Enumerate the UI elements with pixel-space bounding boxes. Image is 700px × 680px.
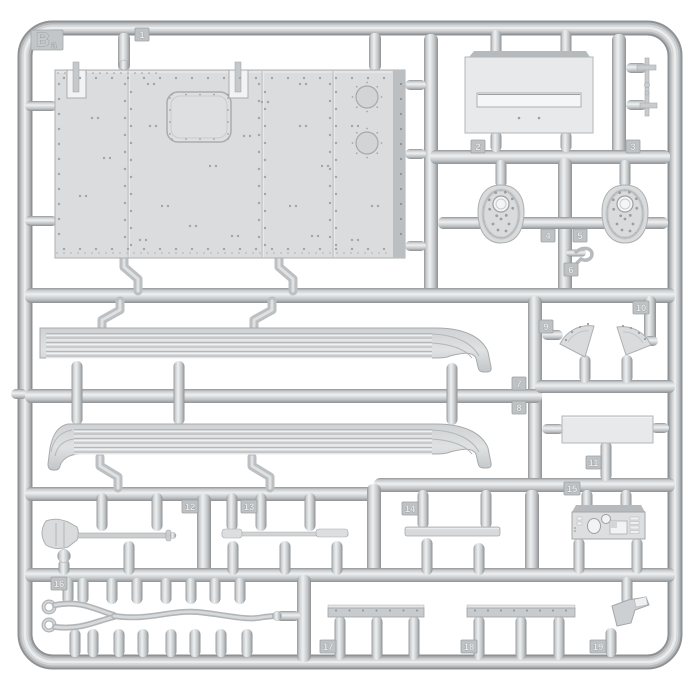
rivet-dot [287,77,289,79]
rivet-dot [366,128,368,130]
gate-pill [72,361,83,425]
rivet-dot [383,77,385,79]
rivet-dot [356,86,358,88]
rivet-dot [319,77,321,79]
rivet-dot [329,168,331,170]
rivet-dot [264,125,266,127]
rivet-dot [207,77,209,79]
rivet-dot [261,101,263,103]
hatch-outline [167,92,231,142]
gate-pill [25,101,57,111]
rivet-dot [416,610,418,612]
rivet-dot [335,142,337,144]
part-number-tab-19: 19 [590,640,606,653]
rivet-dot [356,106,358,108]
gate-pill [622,355,633,383]
rivet-dot [303,248,305,250]
rivet-dot [517,220,519,222]
part-5-perforated-cover [602,185,648,243]
rivet-dot [271,77,273,79]
gate-pill [409,616,420,660]
gate-pill [418,490,429,529]
rivet-dot [635,194,637,196]
rivet-dot [571,331,573,333]
rivet-dot [381,96,383,98]
rivet-dot [124,202,126,204]
rivet-dot [227,109,229,111]
part-number-tab-17: 17 [320,640,336,653]
rivet-dot [159,248,161,250]
gate-pill [561,131,572,152]
part-number-tab-18: 18 [461,640,477,653]
rivet-dot [195,225,197,227]
rivet-dot [614,232,616,234]
rivet-dot [155,125,157,127]
rivet-dot [335,77,337,79]
rivet-dot [327,165,329,167]
part-18-riveted-rail [467,605,575,617]
rivet-dot [58,173,60,175]
rivet-dot [130,193,132,195]
rivet-dot [124,219,126,221]
part-8-fender [48,424,491,470]
part-3-control-lever [637,58,657,116]
gate-pill [124,541,135,575]
gate-pill [235,578,246,604]
rivet-dot [58,218,60,220]
rivet-dot [607,206,609,208]
rivet-dot [58,203,60,205]
rivet-dot [231,235,233,237]
round-port-cover [356,86,378,108]
gate-pill [542,424,564,434]
rivet-dot [130,244,132,246]
gate-pill [491,131,502,152]
rivet-dot [352,96,354,98]
rivet-dot [191,77,193,79]
rivet-dot [632,223,635,226]
rivet-dot [130,227,132,229]
rivet-dot [58,113,60,115]
rivet-dot [505,214,508,217]
rivet-dot [191,248,193,250]
svg-text:15: 15 [567,484,578,495]
gate-pill [516,616,527,660]
rivet-dot [264,176,266,178]
rivet-dot [264,227,266,229]
part-number-tab-10: 10 [633,301,649,314]
rivet-dot [356,132,358,134]
gate-pill [88,629,99,657]
rivet-dot [227,133,229,135]
rivet-dot [111,248,113,250]
svg-text:13: 13 [244,502,255,513]
gate-pill [70,629,81,657]
gate-pill [620,160,631,188]
gate-pill [216,629,227,657]
part-9-sector-plate [560,323,594,357]
gate-pill [138,629,149,657]
rivet-dot [630,327,632,329]
part-number-tab-9: 9 [539,320,553,333]
rivet-dot [295,205,297,207]
panel-slat [630,526,639,529]
gate-pill [186,578,197,604]
rivet-dot [629,214,632,217]
rivet-dot [109,157,111,159]
rivet-dot [227,121,229,123]
rivet-dot [400,203,402,205]
gate-pill [651,423,669,433]
svg-text:12: 12 [185,502,196,513]
rivet-dot [494,191,497,194]
rivet-dot [124,168,126,170]
rivet-dot [335,91,337,93]
rivet-dot [130,210,132,212]
rivet-dot [264,159,266,161]
rivet-dot [638,332,640,334]
rivet-dot [264,108,266,110]
rivet-dot [199,94,201,96]
svg-text:6: 6 [568,265,573,276]
part-11-flat-plate [562,416,653,443]
rivet-dot [130,108,132,110]
rivet-dot [618,191,621,194]
svg-text:14: 14 [405,504,416,515]
rivet-dot [111,77,113,79]
rivet-dot [383,248,385,250]
rivet-dot [311,235,313,237]
rivet-dot [635,207,638,210]
rivet-dot [587,323,589,325]
rivet-dot [255,248,257,250]
rivet-dot [58,143,60,145]
rivet-dot [335,244,337,246]
rivet-dot [400,173,402,175]
round-port-cover [356,132,378,154]
rivet-dot [366,82,368,84]
rivet-dot [264,91,266,93]
rivet-dot [58,128,60,130]
svg-text:18: 18 [464,642,475,653]
part-number-tab-13: 13 [241,500,257,513]
rivet-dot [376,152,378,154]
svg-text:19: 19 [593,642,604,653]
rivet-dot [149,125,151,127]
gate-pill [601,441,612,481]
rivet-dot [335,125,337,127]
rivet-dot [79,77,81,79]
rivet-dot [95,248,97,250]
rivet-dot [130,91,132,93]
rivet-dot [258,185,260,187]
rivet-dot [483,206,485,208]
rivet-dot [474,610,476,612]
rivet-dot [227,97,229,99]
rivet-dot [500,190,502,192]
rivet-dot [130,142,132,144]
gate-pill [405,80,426,90]
rivet-dot [335,227,337,229]
rivet-dot [357,125,359,127]
rivet-dot [264,244,266,246]
rivet-dot [258,202,260,204]
rivet-dot [127,77,129,79]
rivet-dot [161,205,163,207]
rivet-dot [124,185,126,187]
rivet-dot [95,77,97,79]
rivet-dot [329,185,331,187]
gate-pill [632,538,643,574]
rivet-dot [207,248,209,250]
rivet-dot [400,128,402,130]
rivet-dot [58,188,60,190]
rivet-dot [500,610,502,612]
gate-pill [161,578,172,604]
rivet-dot [400,233,402,235]
rivet-dot [335,176,337,178]
rivet-dot [495,214,498,217]
rivet-dot [400,188,402,190]
rivet-dot [258,151,260,153]
part-number-tab-14: 14 [402,502,418,515]
gate-pill [580,355,591,383]
rivet-dot [335,610,337,612]
rivet-dot [169,97,171,99]
rivet-dot [329,236,331,238]
rivet-dot [189,225,191,227]
rivet-dot [612,198,615,201]
rivet-dot [349,610,351,612]
rivet-dot [258,236,260,238]
rivet-dot [497,229,500,232]
rivet-dot [400,218,402,220]
rivet-dot [511,197,514,200]
rivet-dot [58,83,60,85]
rivet-dot [287,248,289,250]
rivet-dot [511,194,513,196]
rivet-dot [237,235,239,237]
rivet-dot [400,113,402,115]
panel-slat [630,517,639,520]
rivet-dot [366,157,368,159]
rivet-dot [171,138,173,140]
gate-pill [190,629,201,657]
rivet-dot [389,610,391,612]
rivet-dot [641,206,643,208]
rivet-dot [215,165,217,167]
rivet-dot [367,77,369,79]
part-number-tab-12: 12 [182,500,198,513]
rivet-dot [58,98,60,100]
rivet-dot [635,232,637,234]
rivet-dot [362,610,364,612]
gate-pill [280,541,291,575]
gate-pill [474,616,485,660]
rivet-dot [513,610,515,612]
rivet-dot [335,193,337,195]
rivet-dot [97,117,99,119]
rivet-dot [264,193,266,195]
gate-pill [228,541,239,575]
rivet-dot [169,133,171,135]
rivet-dot [488,198,491,201]
rivet-dot [223,77,225,79]
rivet-dot [267,101,269,103]
rivet-dot [258,100,260,102]
rivet-dot [130,159,132,161]
rivet-dot [400,158,402,160]
gate-pill [152,493,163,531]
rivet-dot [329,134,331,136]
rivet-dot [223,248,225,250]
rivet-dot [579,326,581,328]
rivet-dot [505,230,508,233]
rivet-dot [213,138,215,140]
gate-pill [481,490,492,529]
gate-pill [496,160,507,188]
rivet-dot [127,248,129,250]
rivet-dot [335,108,337,110]
rivet-dot [500,237,502,239]
gate-pill [227,493,238,531]
rivet-dot [487,610,489,612]
rivet-dot [329,83,331,85]
rivet-dot [153,83,155,85]
rivet-dot [511,232,513,234]
rivet-dot [258,219,260,221]
rivet-dot [124,83,126,85]
part-number-tab-15: 15 [564,482,580,495]
rivet-dot [305,83,307,85]
rivet-dot [351,239,353,241]
gate-pill [447,363,458,425]
gate-pill [132,578,143,604]
rivet-dot [169,109,171,111]
rivet-dot [357,239,359,241]
gate-pill [332,541,343,575]
rivet-dot [488,208,491,211]
rivet-dot [264,142,266,144]
frame-outer-stub [11,389,27,399]
rivet-dot [377,205,379,207]
rivet-dot [243,135,245,137]
rivet-dot [329,151,331,153]
rivet-dot [124,117,126,119]
rivet-dot [624,218,627,221]
rivet-dot [239,77,241,79]
model-kit-sprue-photo: 1 2 3 4 5 6 7 8 9 10 11 12 13 14 15 16 1… [0,0,700,680]
rivet-dot [130,176,132,178]
rivet-dot [169,121,171,123]
rivet-dot [635,197,638,200]
rivet-dot [613,194,615,196]
rivet-dot [143,77,145,79]
part-number-tab-8: 8 [512,401,526,414]
part-number-tab-1: 1 [135,28,149,41]
rivet-dot [552,610,554,612]
rivet-dot [641,220,643,222]
sprue-svg: 1 2 3 4 5 6 7 8 9 10 11 12 13 14 15 16 1… [0,0,700,680]
rivet-dot [289,205,291,207]
rivet-dot [607,221,609,223]
part-17-riveted-rail [328,605,424,617]
rivet-dot [185,94,187,96]
svg-text:9: 9 [543,322,548,333]
rivet-dot [58,233,60,235]
rivet-dot [227,94,229,96]
gate-pill [422,538,433,575]
rivet-dot [299,83,301,85]
rivet-dot [483,221,485,223]
gate-pill [107,578,118,604]
rivet-dot [351,77,353,79]
rivet-dot [79,195,81,197]
rivet-dot [175,248,177,250]
rivet-dot [167,205,169,207]
svg-text:7: 7 [516,379,521,390]
rivet-dot [335,248,337,250]
rivet-dot [130,125,132,127]
rivet-dot [335,210,337,212]
part-19-bracket [612,597,649,626]
rivet-dot [356,152,358,154]
rivet-dot [258,134,260,136]
rivet-dot [329,117,331,119]
part-15-instrument-panel [572,505,645,539]
rivet-dot [376,132,378,134]
rivet-dot [565,339,567,341]
rivet-dot [400,98,402,100]
rivet-dot [147,83,149,85]
rivet-dot [139,239,141,241]
sprue-brand-label: B a [31,30,63,51]
part-number-tab-16: 16 [51,577,67,590]
rivet-dot [539,610,541,612]
svg-text:a: a [51,40,57,51]
rivet-dot [508,223,511,226]
rivet-dot [171,94,173,96]
part-number-tab-6: 6 [564,263,578,276]
part-1-roof-panel [55,60,405,258]
part-number-tab-3: 3 [626,140,640,153]
part-13-rod-tool [222,529,348,538]
rivet-dot [628,191,631,194]
rivet-dot [185,138,187,140]
rivet-dot [403,610,405,612]
rivet-dot [489,194,491,196]
rivet-dot [124,100,126,102]
rivet-dot [351,125,353,127]
rivet-dot [381,142,383,144]
svg-text:3: 3 [630,142,635,153]
gate-pill [405,241,426,251]
rivet-dot [616,223,619,226]
panel-slat [630,522,639,525]
rivet-dot [258,83,260,85]
rivet-dot [321,165,323,167]
rivet-dot [264,210,266,212]
gate-pill [166,629,177,657]
rivet-dot [143,248,145,250]
rivet-dot [91,117,93,119]
rivet-dot [209,165,211,167]
rivet-dot [103,157,105,159]
rivet-dot [492,223,495,226]
gate-pill [210,578,221,604]
rivet-dot [305,125,307,127]
rivet-dot [351,248,353,250]
